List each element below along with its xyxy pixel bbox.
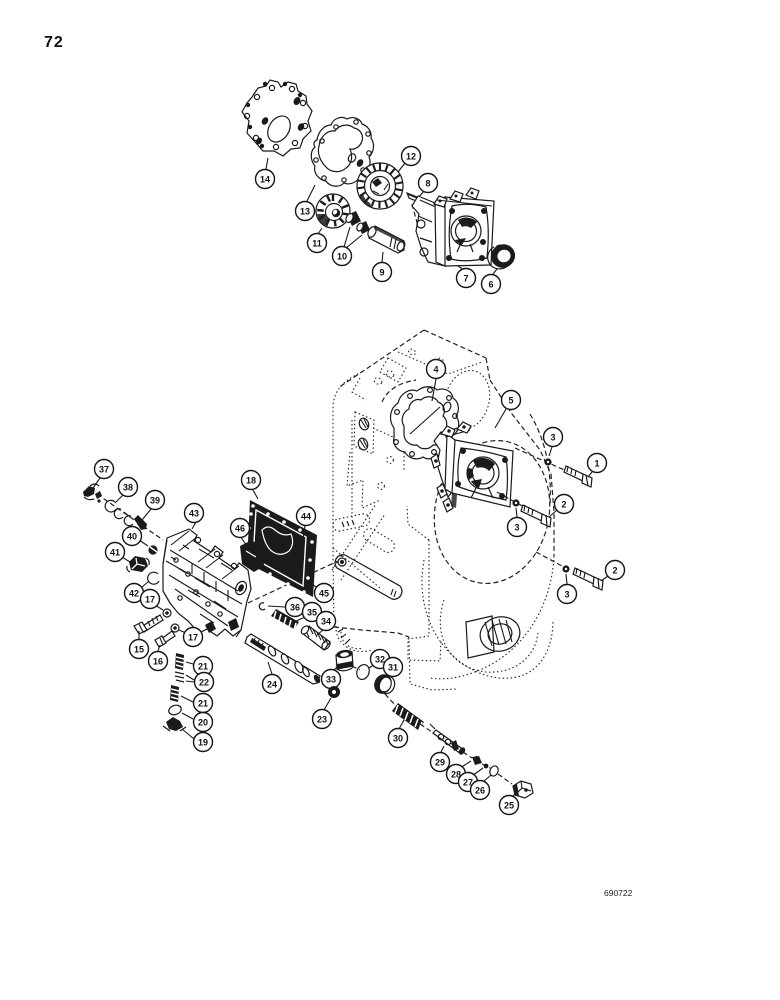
svg-text:42: 42	[129, 588, 139, 598]
svg-text:2: 2	[561, 499, 566, 509]
svg-text:29: 29	[435, 757, 445, 767]
svg-text:34: 34	[321, 616, 331, 626]
svg-text:8: 8	[425, 178, 430, 188]
svg-text:6: 6	[488, 279, 493, 289]
svg-text:11: 11	[312, 238, 322, 248]
svg-text:31: 31	[388, 662, 398, 672]
svg-text:24: 24	[267, 679, 277, 689]
svg-text:25: 25	[504, 800, 514, 810]
svg-text:36: 36	[290, 602, 300, 612]
svg-text:13: 13	[300, 206, 310, 216]
svg-text:21: 21	[198, 698, 208, 708]
svg-text:44: 44	[301, 511, 311, 521]
svg-text:1: 1	[594, 458, 599, 468]
svg-text:30: 30	[393, 733, 403, 743]
svg-text:15: 15	[134, 644, 144, 654]
svg-text:12: 12	[406, 151, 416, 161]
svg-text:37: 37	[99, 464, 109, 474]
svg-text:32: 32	[375, 654, 385, 664]
svg-text:5: 5	[508, 395, 513, 405]
svg-text:20: 20	[198, 717, 208, 727]
svg-text:7: 7	[463, 273, 468, 283]
svg-text:3: 3	[550, 432, 555, 442]
svg-text:39: 39	[150, 495, 160, 505]
svg-text:10: 10	[337, 251, 347, 261]
svg-text:72: 72	[44, 34, 64, 51]
svg-text:33: 33	[326, 674, 336, 684]
svg-text:45: 45	[319, 588, 329, 598]
svg-text:17: 17	[145, 594, 155, 604]
svg-text:14: 14	[260, 174, 270, 184]
svg-text:38: 38	[123, 482, 133, 492]
svg-text:18: 18	[246, 475, 256, 485]
svg-text:17: 17	[188, 632, 198, 642]
svg-text:21: 21	[198, 661, 208, 671]
svg-text:23: 23	[317, 714, 327, 724]
svg-text:690722: 690722	[604, 888, 633, 898]
svg-text:26: 26	[475, 785, 485, 795]
svg-text:43: 43	[189, 508, 199, 518]
svg-text:2: 2	[612, 565, 617, 575]
svg-text:22: 22	[199, 677, 209, 687]
svg-text:40: 40	[127, 531, 137, 541]
svg-text:19: 19	[198, 737, 208, 747]
svg-text:9: 9	[379, 267, 384, 277]
svg-text:4: 4	[433, 364, 438, 374]
svg-text:46: 46	[235, 523, 245, 533]
svg-text:3: 3	[514, 522, 519, 532]
svg-text:41: 41	[110, 547, 120, 557]
svg-text:35: 35	[307, 607, 317, 617]
svg-text:3: 3	[564, 589, 569, 599]
svg-text:16: 16	[153, 656, 163, 666]
